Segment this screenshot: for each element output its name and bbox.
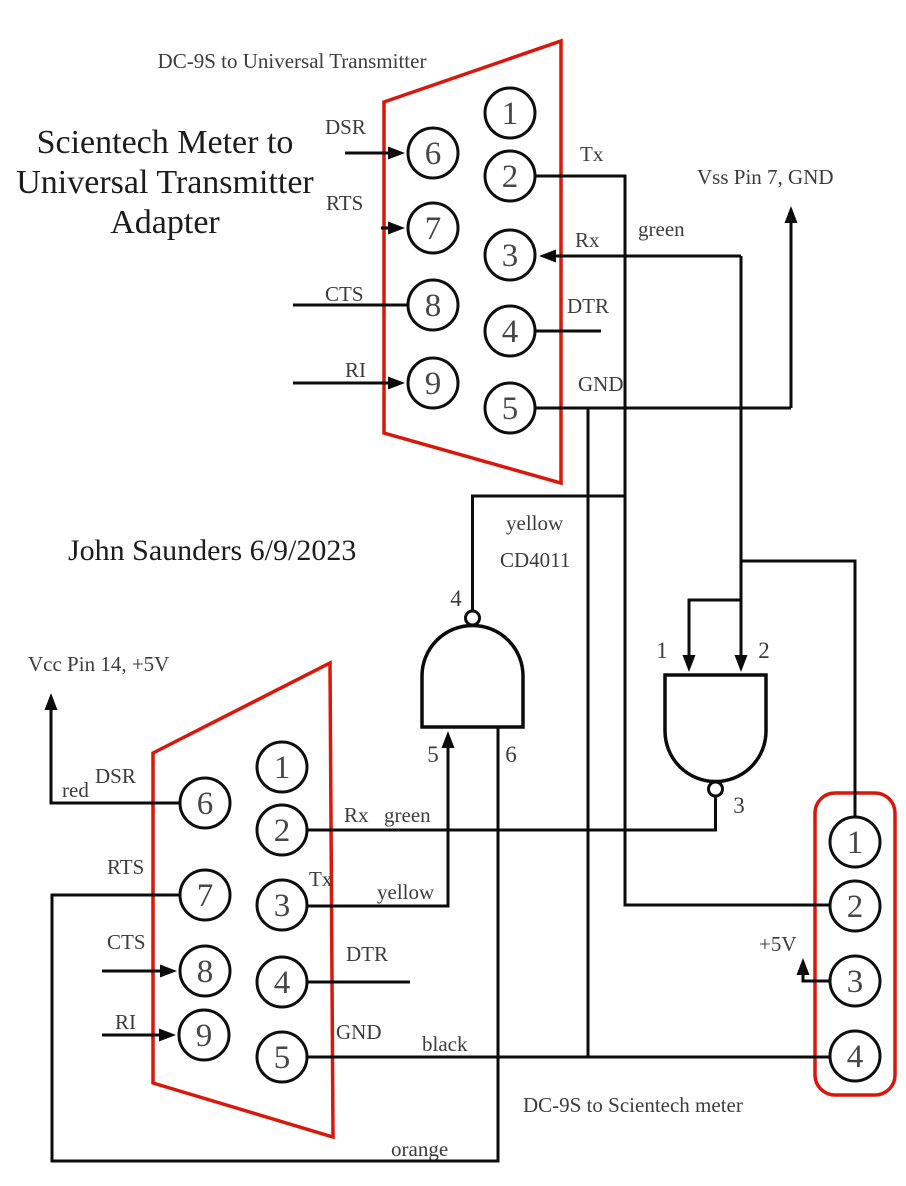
bottom-pin-8-number: 8	[197, 954, 214, 990]
top-rts-label: RTS	[326, 191, 363, 215]
nand-gate-1-body	[422, 625, 523, 727]
orange-wire-label: orange	[391, 1137, 448, 1161]
bottom-pin-5-number: 5	[274, 1040, 291, 1076]
bottom-pin-6-number: 6	[197, 786, 214, 822]
gate2-pin3-number: 3	[733, 793, 745, 818]
gate2-pin1-number: 1	[656, 638, 668, 663]
top-connector-caption: DC-9S to Universal Transmitter	[158, 49, 427, 73]
nand-gate-2-body	[665, 675, 766, 782]
page-title-line3: Adapter	[110, 204, 220, 241]
author-date: John Saunders 6/9/2023	[68, 534, 356, 567]
chip-label: CD4011	[500, 548, 570, 572]
bottom-pin-7-number: 7	[197, 878, 214, 914]
top-cts-label: CTS	[325, 282, 364, 306]
wire-gate2-input1-arrow	[689, 600, 741, 657]
bottom-tx-label: Tx	[309, 867, 333, 891]
vcc-power-label: Vcc Pin 14, +5V	[28, 652, 169, 676]
meter-pin-3-number: 3	[847, 964, 864, 1000]
meter-connector: 1 2 3 4 +5V	[759, 793, 895, 1095]
meter-pin-1-number: 1	[847, 825, 864, 861]
top-pin-5-number: 5	[502, 391, 519, 427]
bottom-pin-9-number: 9	[196, 1018, 213, 1054]
mid-yellow-wire-label: yellow	[506, 511, 564, 535]
nand-gate-1-bubble	[466, 611, 480, 625]
nand-gate-2-bubble	[709, 782, 723, 796]
top-dtr-label: DTR	[567, 294, 609, 318]
gate1-pin6-number: 6	[505, 742, 517, 767]
bottom-dsr-label: DSR	[95, 764, 136, 788]
top-connector: 1 2 3 4 5 6 7 8 9 DSR RTS CTS RI Tx Rx g…	[325, 41, 834, 483]
black-wire-label: black	[422, 1032, 468, 1056]
top-pin-3-number: 3	[502, 238, 519, 274]
bottom-pin-2-number: 2	[274, 813, 291, 849]
top-pin-1-number: 1	[502, 96, 519, 132]
gate2-pin2-number: 2	[758, 638, 770, 663]
top-pin-8-number: 8	[425, 288, 442, 324]
meter-5v-label: +5V	[759, 932, 797, 956]
green-wire-label: green	[384, 803, 431, 827]
bottom-pin-4-number: 4	[274, 965, 291, 1001]
top-pin-4-number: 4	[502, 314, 519, 350]
bottom-rx-label: Rx	[344, 803, 369, 827]
page-title-line2: Universal Transmitter	[16, 164, 314, 201]
bottom-pin-3-number: 3	[274, 888, 291, 924]
vss-power-label: Vss Pin 7, GND	[697, 165, 834, 189]
schematic-canvas: DC-9S to Universal Transmitter Scientech…	[0, 0, 906, 1186]
bottom-rts-label: RTS	[107, 855, 144, 879]
top-green-wire-label: green	[638, 217, 685, 241]
bottom-connector-caption: DC-9S to Scientech meter	[523, 1093, 743, 1117]
top-pin-7-number: 7	[425, 211, 442, 247]
top-pin-9-number: 9	[425, 366, 442, 402]
gate1-pin4-number: 4	[450, 586, 462, 611]
top-ri-label: RI	[345, 358, 366, 382]
bottom-pin-1-number: 1	[274, 750, 291, 786]
schematic-page: DC-9S to Universal Transmitter Scientech…	[0, 0, 906, 1186]
wire-tx-net	[535, 176, 829, 905]
top-tx-label: Tx	[580, 142, 604, 166]
top-dsr-label: DSR	[325, 115, 366, 139]
bottom-ri-label: RI	[115, 1010, 136, 1034]
yellow-wire-label: yellow	[377, 880, 435, 904]
bottom-gnd-label: GND	[336, 1020, 382, 1044]
bottom-cts-label: CTS	[107, 930, 146, 954]
top-pin-2-number: 2	[502, 159, 519, 195]
page-title-line1: Scientech Meter to	[37, 124, 294, 161]
top-rx-label: Rx	[575, 228, 600, 252]
gate1-pin5-number: 5	[427, 742, 439, 767]
bottom-dtr-label: DTR	[346, 942, 388, 966]
meter-pin-4-number: 4	[847, 1039, 864, 1075]
cd4011-gates: yellow CD4011 4 5 6 1 2 3	[422, 511, 770, 818]
red-wire-label: red	[62, 778, 89, 802]
top-pin-6-number: 6	[425, 136, 442, 172]
meter-pin-2-number: 2	[847, 889, 864, 925]
top-gnd-label: GND	[578, 372, 624, 396]
